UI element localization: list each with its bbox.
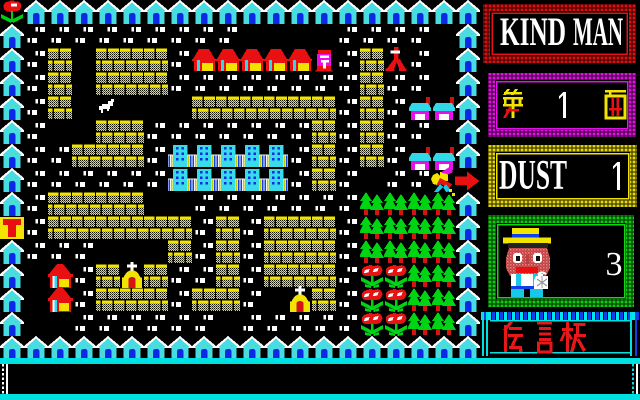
svg-text:KIND: KIND	[500, 9, 566, 54]
svg-text:3: 3	[606, 246, 623, 283]
svg-text:DUST: DUST	[499, 153, 567, 199]
svg-text:MAN: MAN	[573, 9, 623, 54]
